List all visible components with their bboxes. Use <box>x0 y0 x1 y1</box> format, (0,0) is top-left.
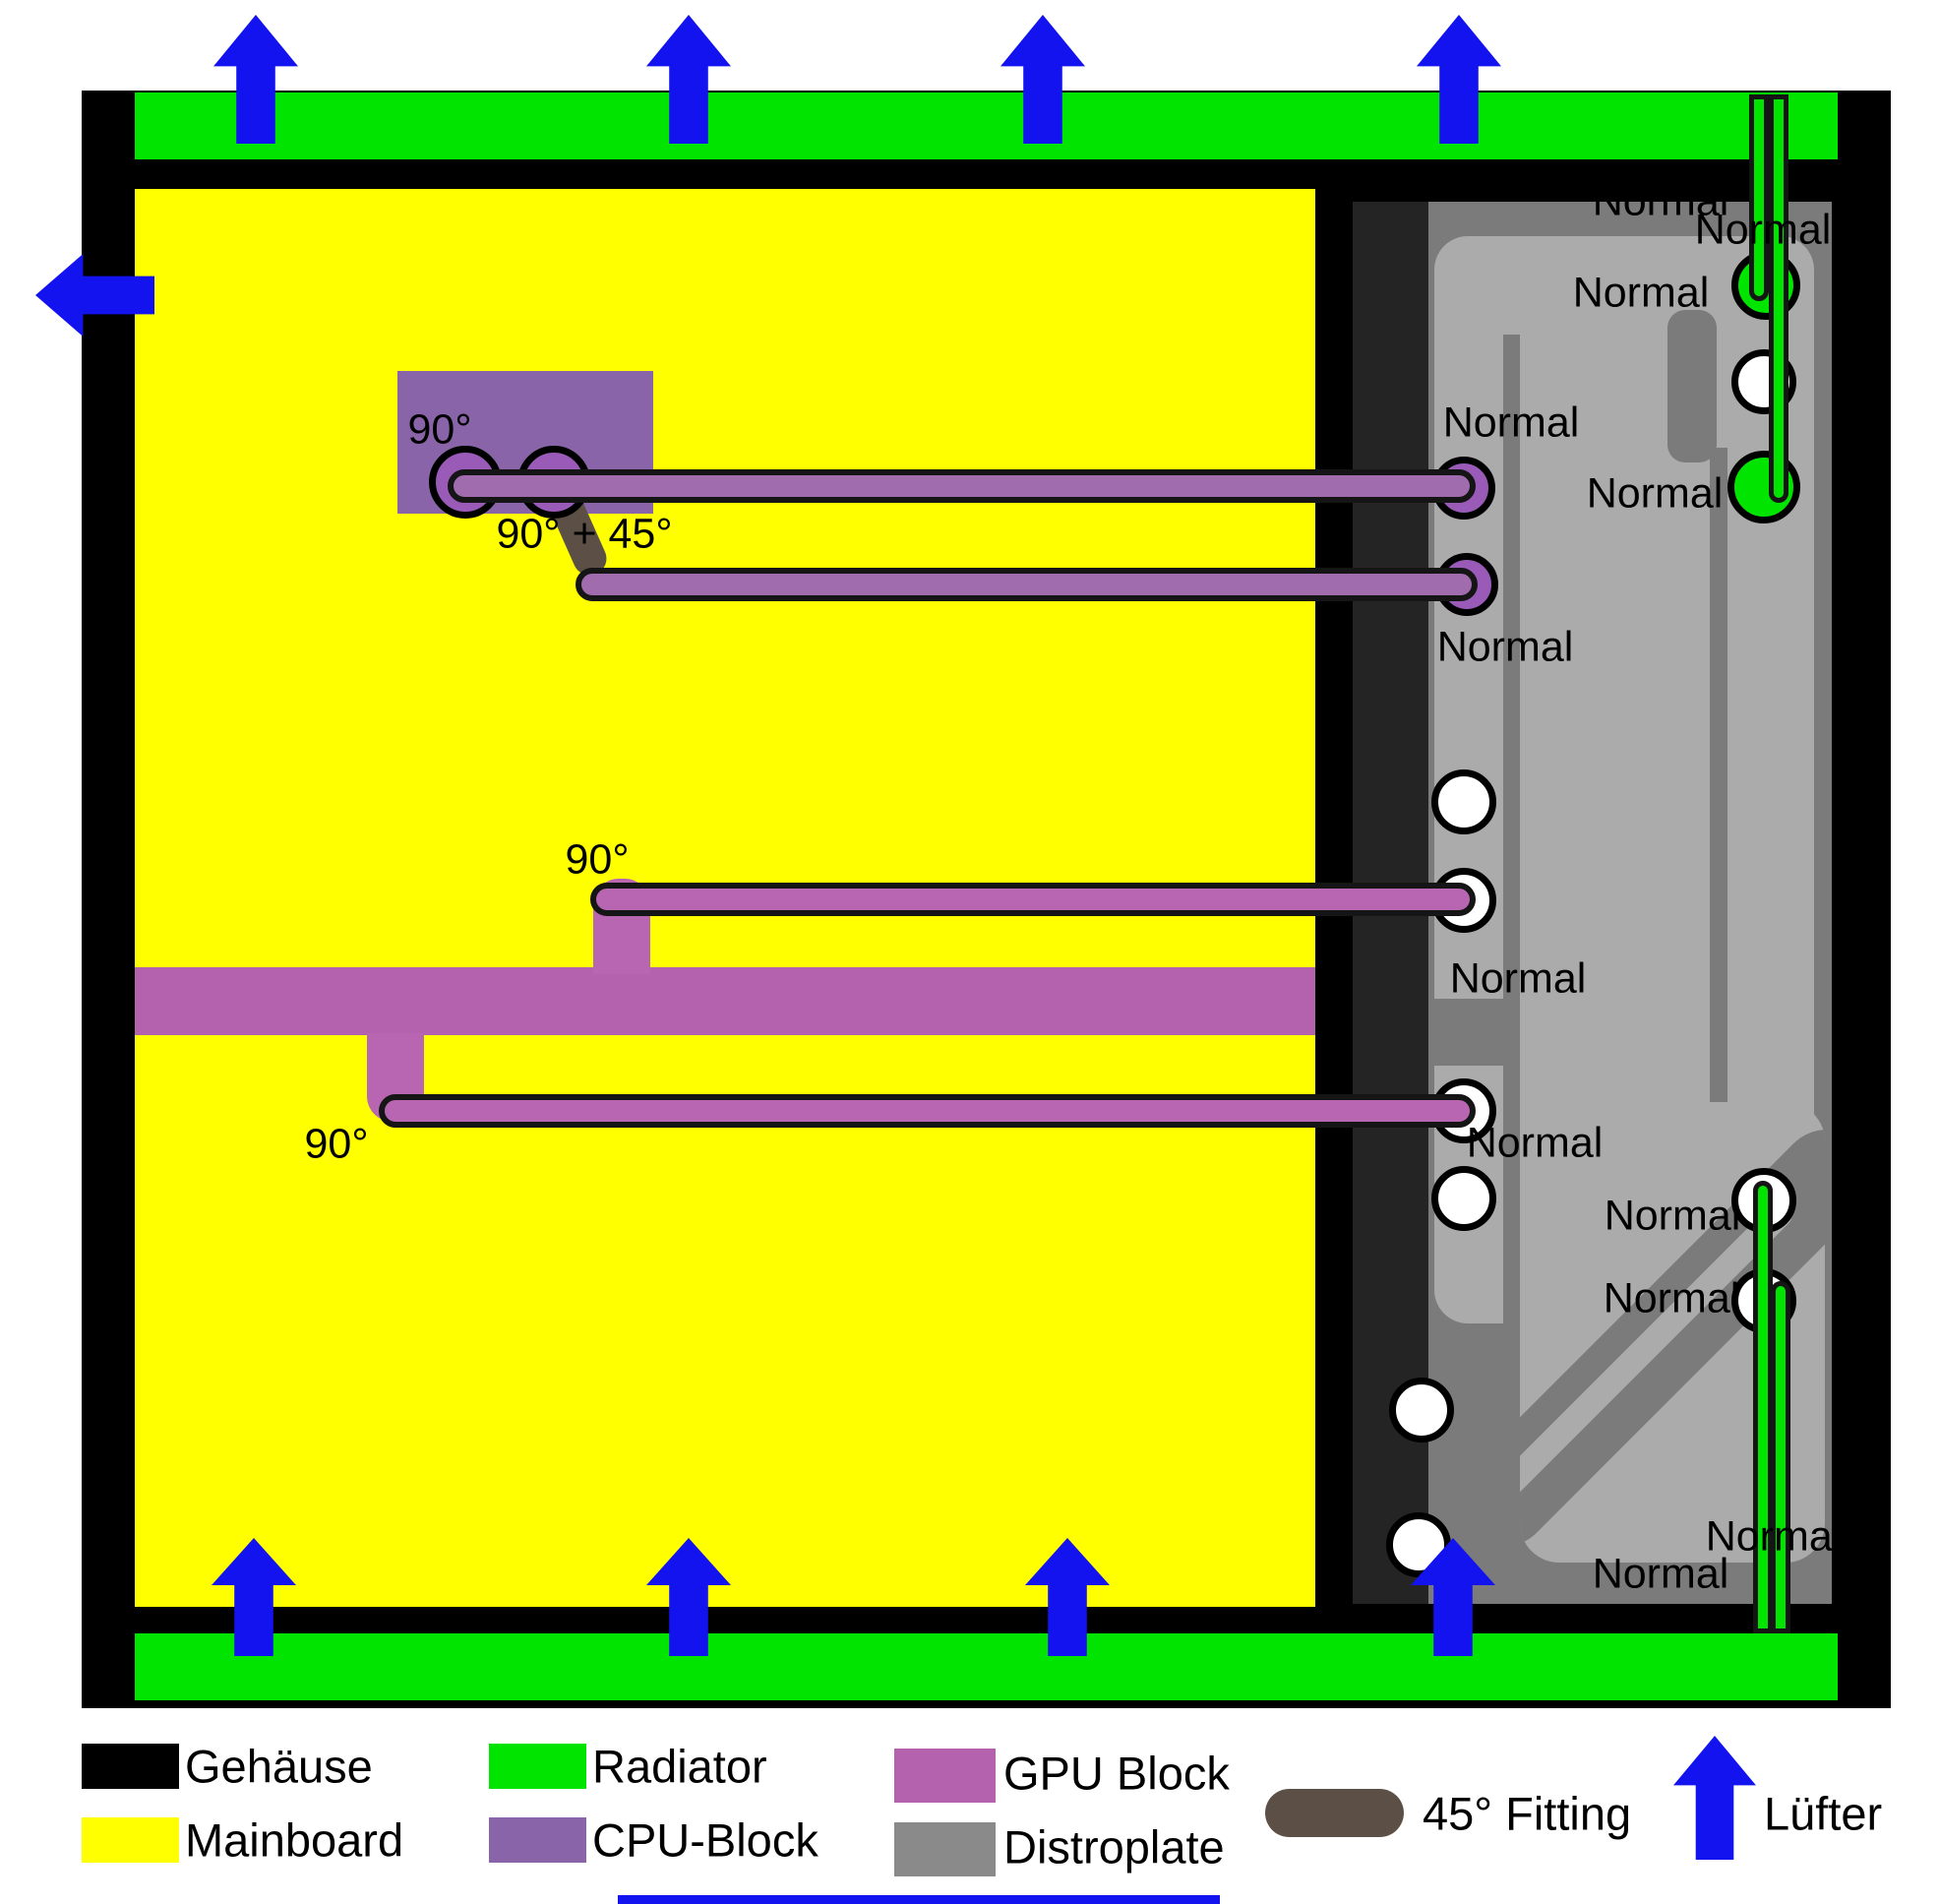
tube-radiator-bottom-b <box>1771 1281 1790 1633</box>
fitting-label-90-45-cpu: 90° + 45° <box>496 511 672 559</box>
legend-label-cpu-block: CPU-Block <box>592 1813 818 1868</box>
gpu-tube-upper <box>590 883 1476 916</box>
port-strip-1 <box>1389 1378 1454 1443</box>
distroplate-port-column-gap <box>1428 999 1511 1066</box>
legend-label-gpu-block: GPU Block <box>1003 1747 1230 1801</box>
legend-label-radiator: Radiator <box>592 1740 767 1794</box>
fitting-label-90-cpu: 90° <box>407 406 471 455</box>
port-unused-1 <box>1431 769 1496 834</box>
distroplate-divider-left <box>1503 335 1520 1323</box>
legend-swatch-gehaeuse <box>82 1744 179 1789</box>
fitting-label-normal-4: Normal <box>1443 399 1580 448</box>
fitting-label-normal-9: Normal <box>1605 1193 1741 1241</box>
legend-swatch-45-fitting <box>1265 1789 1404 1837</box>
radiator-bottom <box>135 1633 1838 1700</box>
legend-swatch-cpu-block <box>489 1817 586 1863</box>
tube-radiator-bottom-a <box>1753 1181 1773 1633</box>
legend-label-45-fitting: 45° Fitting <box>1423 1787 1631 1841</box>
fitting-label-normal-5: Normal <box>1587 470 1724 519</box>
legend-label-mainboard: Mainboard <box>185 1813 403 1868</box>
tube-radiator-top-short <box>1749 94 1769 301</box>
fitting-label-normal-3: Normal <box>1573 270 1710 318</box>
legend-label-distroplate: Distroplate <box>1003 1820 1225 1874</box>
fitting-label-normal-8: Normal <box>1467 1120 1604 1168</box>
legend-label-gehaeuse: Gehäuse <box>185 1740 373 1794</box>
legend-swatch-luefter-arrow <box>1673 1736 1756 1860</box>
legend-swatch-mainboard <box>82 1817 179 1863</box>
fitting-label-normal-12: Normal <box>1593 1551 1729 1599</box>
diagram-canvas: Normal Normal Normal Normal Normal Norma… <box>0 0 1939 1904</box>
legend-swatch-radiator <box>489 1744 586 1789</box>
legend-swatch-distroplate <box>894 1822 996 1876</box>
fitting-label-normal-7: Normal <box>1450 955 1587 1004</box>
legend-label-luefter: Lüfter <box>1764 1787 1882 1841</box>
gpu-block <box>135 967 1315 1035</box>
bottom-cropped-blue-strip <box>618 1895 1220 1904</box>
tube-radiator-top-long <box>1769 94 1788 503</box>
port-unused-2 <box>1431 1166 1496 1231</box>
cpu-tube-lower <box>576 568 1478 601</box>
cpu-tube-upper <box>448 469 1476 503</box>
fitting-label-90-gpu-upper: 90° <box>565 836 629 885</box>
distroplate-channel-notch <box>1667 310 1717 462</box>
fitting-label-normal-10: Normal <box>1604 1275 1740 1323</box>
legend: Gehäuse Mainboard Radiator CPU-Block GPU… <box>0 1708 1939 1904</box>
port-radiator-top-fitting-2 <box>1727 451 1800 523</box>
legend-swatch-gpu-block <box>894 1749 996 1803</box>
fitting-label-normal-6: Normal <box>1437 624 1574 672</box>
fitting-label-90-gpu-lower: 90° <box>304 1121 368 1169</box>
gpu-tube-lower <box>379 1094 1476 1128</box>
radiator-top <box>135 92 1838 159</box>
fitting-label-normal-2: Normal <box>1695 207 1832 255</box>
